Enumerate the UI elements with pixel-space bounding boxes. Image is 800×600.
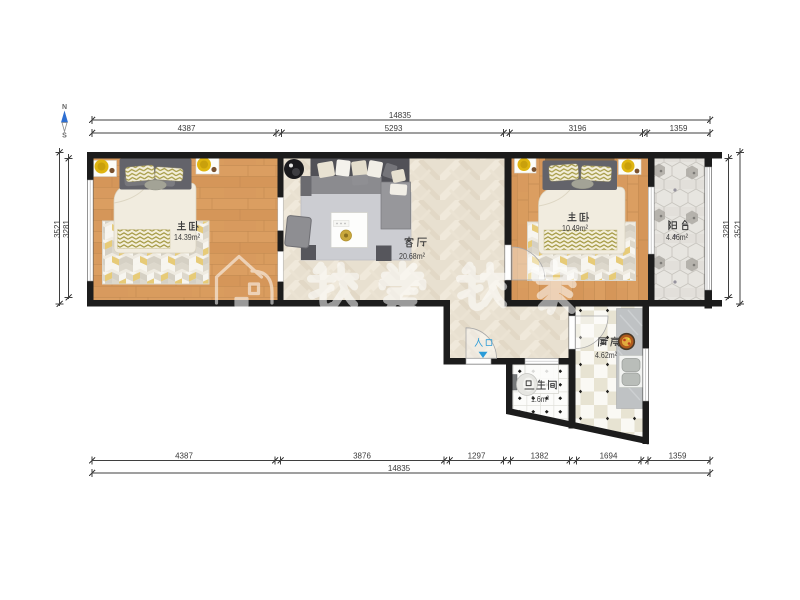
svg-text:4.62m²: 4.62m²: [595, 350, 617, 360]
svg-text:N: N: [62, 104, 67, 111]
svg-text:3521: 3521: [53, 220, 62, 238]
svg-text:1.6m²: 1.6m²: [531, 394, 549, 404]
svg-text:5293: 5293: [385, 124, 403, 133]
svg-text:1694: 1694: [600, 452, 618, 461]
svg-text:S: S: [62, 133, 67, 140]
svg-text:4387: 4387: [175, 452, 193, 461]
svg-text:3521: 3521: [734, 220, 743, 238]
svg-text:20.68m²: 20.68m²: [399, 251, 425, 261]
svg-text:14.39m²: 14.39m²: [174, 232, 200, 242]
svg-text:3281: 3281: [62, 220, 71, 238]
svg-text:14835: 14835: [389, 111, 412, 120]
svg-text:1359: 1359: [670, 124, 688, 133]
svg-text:3281: 3281: [722, 220, 731, 238]
svg-text:3876: 3876: [353, 452, 371, 461]
svg-text:14835: 14835: [388, 464, 411, 473]
svg-text:1297: 1297: [468, 452, 486, 461]
svg-text:3196: 3196: [569, 124, 587, 133]
svg-text:4.46m²: 4.46m²: [666, 232, 688, 242]
svg-text:4387: 4387: [178, 124, 196, 133]
svg-text:1359: 1359: [669, 452, 687, 461]
svg-text:10.49m²: 10.49m²: [562, 223, 588, 233]
svg-text:1382: 1382: [531, 452, 549, 461]
